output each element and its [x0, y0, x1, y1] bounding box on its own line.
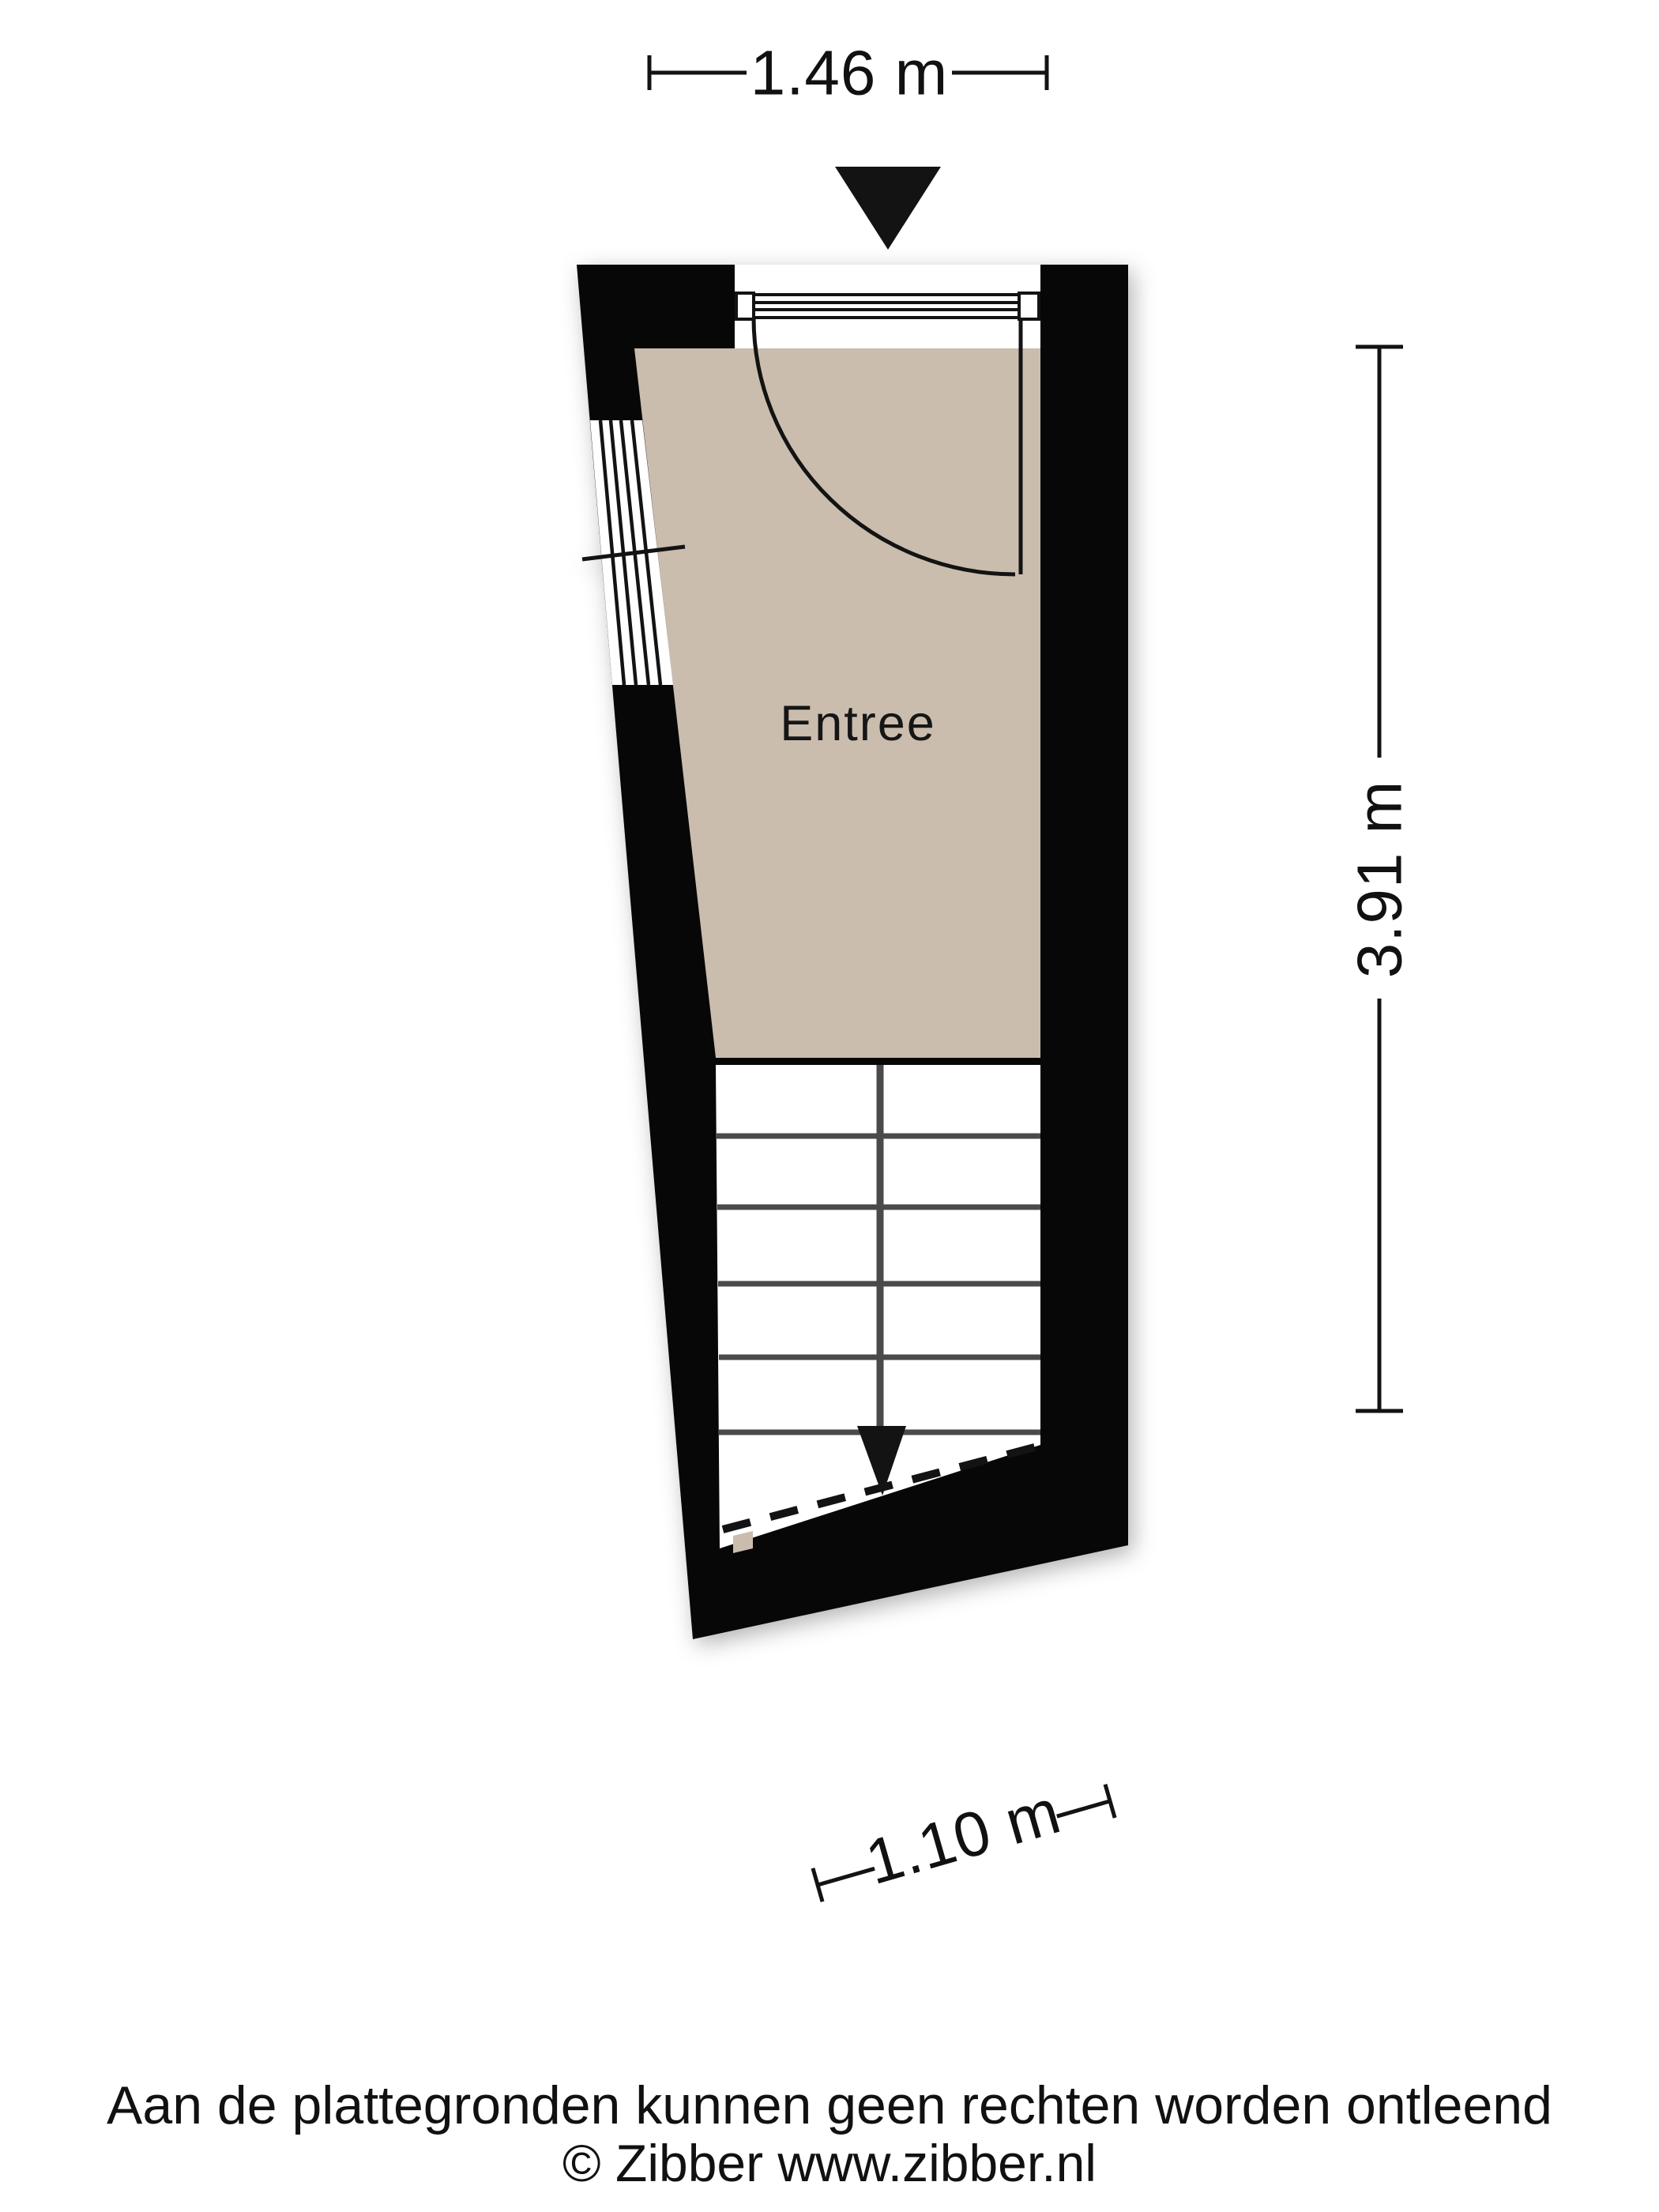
building-shell [577, 265, 1128, 1639]
disclaimer-text: Aan de plattegronden kunnen geen rechten… [0, 2075, 1659, 2136]
copyright-text: © Zibber www.zibber.nl [0, 2133, 1659, 2193]
floorplan-canvas: Entree 1.46 m 3.91 m 1.10 m [0, 0, 1659, 2212]
dimension-bottom: 1.10 m [807, 1761, 1119, 1913]
door-jamb-left [736, 293, 754, 319]
dimension-right-label: 3.91 m [1345, 781, 1415, 979]
floorplan-page: Entree 1.46 m 3.91 m 1.10 m [0, 0, 1659, 2212]
dimension-bottom-label: 1.10 m [859, 1776, 1068, 1898]
entrance-arrow-icon [835, 167, 941, 250]
door-opening [735, 265, 1040, 348]
dimension-top-label: 1.46 m [750, 38, 949, 108]
room-label: Entree [780, 696, 936, 751]
door-jamb-right [1019, 293, 1039, 319]
